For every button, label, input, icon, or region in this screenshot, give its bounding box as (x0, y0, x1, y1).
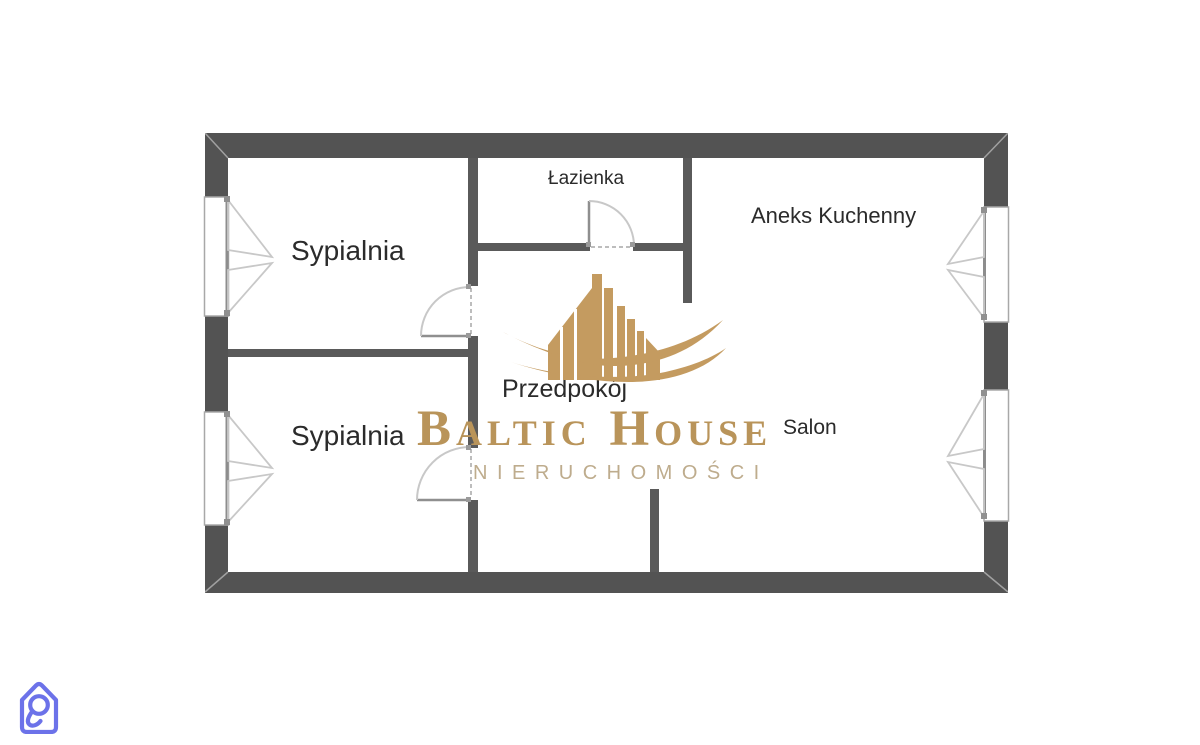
door-hinge (466, 497, 471, 502)
window-frame (984, 207, 1009, 322)
window-right-top (948, 207, 1009, 322)
window-frame (984, 390, 1009, 521)
window-casement-triangles (228, 415, 272, 522)
window-hinge (224, 310, 230, 316)
window-hinge (981, 314, 987, 320)
door-bedroom-top (421, 284, 471, 338)
window-hinge (224, 519, 230, 525)
wall-hall-lower (468, 500, 478, 572)
window-casement-triangles (948, 211, 984, 318)
room-label-salon: Salon (783, 417, 837, 438)
window-right-bottom (948, 390, 1009, 521)
wall-outer-bottom (205, 572, 1008, 593)
door-hinge (630, 242, 635, 247)
watermark-subtitle-text: NIERUCHOMOŚCI (473, 463, 769, 483)
house-loop-logo-icon (12, 678, 66, 734)
window-hinge (981, 390, 987, 396)
window-hinge (981, 207, 987, 213)
window-left-bottom (205, 411, 273, 525)
room-label-sypialnia-top: Sypialnia (291, 237, 405, 265)
wall-bathroom-bottom-left (473, 243, 590, 251)
room-label-aneks-kuchenny: Aneks Kuchenny (751, 205, 916, 227)
window-casement-triangles (948, 394, 984, 517)
window-hinge (981, 513, 987, 519)
floor-plan-image: Sypialnia Łazienka Aneks Kuchenny Sypial… (0, 0, 1200, 745)
room-label-lazienka: Łazienka (548, 169, 624, 188)
room-label-sypialnia-bottom: Sypialnia (291, 422, 405, 450)
watermark-brand-text: Baltic House (417, 404, 772, 455)
wall-outer-right (984, 133, 1008, 593)
wall-outer-top (205, 133, 1008, 158)
baltic-house-skyline-icon (497, 265, 729, 387)
window-hinge (224, 411, 230, 417)
window-casement-triangles (228, 200, 272, 313)
window-left-top (205, 196, 273, 316)
window-frame (205, 197, 229, 316)
window-frame (205, 412, 229, 525)
wall-between-bedrooms (228, 349, 478, 357)
door-hinge (466, 284, 471, 289)
door-swing-arc (421, 287, 470, 336)
window-hinge (224, 196, 230, 202)
door-swing-arc (589, 201, 634, 246)
wall-bathroom-bottom-right (633, 243, 691, 251)
door-bathroom (586, 201, 635, 247)
door-hinge (586, 242, 591, 247)
wall-hall-upper (468, 158, 478, 286)
wall-salon-hall (650, 489, 659, 572)
door-hinge (466, 333, 471, 338)
